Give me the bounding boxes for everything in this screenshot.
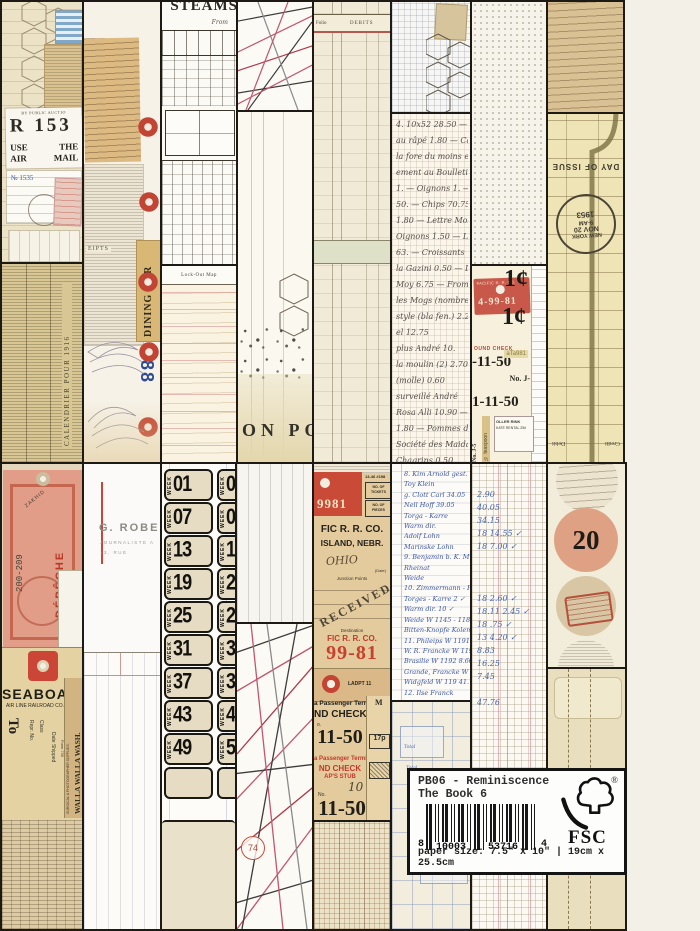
- twenty-circle: 20: [554, 508, 618, 572]
- blue-list-line: 11. Phileips W 1191 14.05 ✓: [404, 636, 470, 646]
- week-stamp: WEEK 19: [164, 568, 213, 600]
- postmark-year: 1953: [576, 209, 594, 219]
- handwriting-line: la fore du moins et mag: [396, 149, 468, 165]
- blue-grid-tile: [390, 0, 472, 114]
- handwriting-line: style (bla fen.) 2.25: [396, 309, 468, 325]
- terminal-black: a Passenger Terminal: [314, 700, 366, 707]
- almanac-caption: CALENDRIER POUR 1916: [62, 284, 72, 448]
- ledger-number: 40.05: [477, 501, 547, 514]
- blank-stamp: [164, 767, 213, 799]
- credit-label: Credit: [605, 440, 620, 446]
- blue-list-line: Bitten-Knopfe Kolemann: [404, 625, 470, 635]
- company-city: ISLAND, NEBR.: [314, 538, 390, 548]
- dot-grid-tile: [470, 0, 548, 266]
- ledger-number: 16.25: [477, 657, 547, 670]
- blue-list-line: Nell Hoff 39.05: [404, 500, 470, 510]
- pink-ledger-tile: Lock-Out Map: [160, 264, 238, 464]
- table-grid-lower: [162, 160, 236, 265]
- ledger-number: 7.45: [477, 670, 547, 683]
- week-row: WEEK 43 WEEK 44: [164, 699, 237, 732]
- ledger-form-lower: [84, 652, 160, 930]
- repr-label: Repr. No.: [28, 720, 34, 741]
- green-band: [314, 240, 390, 264]
- ink-speckles: [238, 322, 312, 382]
- mail-word: MAIL: [54, 152, 79, 162]
- ledger-number: 8.83: [477, 644, 547, 657]
- tan-handwriting-scrap: [83, 38, 141, 163]
- week-stamp: WEEK 14: [217, 535, 237, 567]
- stamp-strip: [8, 230, 80, 262]
- destination-label: Destination: [314, 628, 390, 633]
- week-number: 25: [173, 604, 191, 629]
- week-number: 31: [173, 637, 191, 662]
- week-number: 19: [173, 571, 191, 596]
- week-row: WEEK 13 WEEK 14: [164, 534, 237, 567]
- week-rows: WEEK 01 WEEK 02 WEEK 07 WEEK 08 WE: [164, 468, 237, 765]
- product-title-line1: PB06 - Reminiscence: [418, 775, 549, 788]
- seaboard-label: SEABOARD: [2, 686, 68, 702]
- blue-list-line: Weide W 1145 - 1182 4: [404, 615, 470, 625]
- check-black: ND CHECK: [314, 709, 366, 720]
- tan-wash: [84, 400, 162, 464]
- company-name: FIC R. R. CO.: [314, 524, 390, 535]
- paper-size-text: paper size: 7.5" x 10" | 19cm x 25.5cm: [418, 847, 624, 869]
- latitude-boxes: [165, 110, 235, 156]
- blue-list-line: Adolf Lohn: [404, 531, 470, 541]
- handwriting-line: 63. — Croissants: [396, 245, 468, 261]
- cream-card-outline: [554, 677, 622, 719]
- almanac-tile: CALENDRIER POUR 1916: [0, 262, 84, 464]
- handwriting-line: Rosa Alli 10.90 —: [396, 405, 468, 421]
- week-row: WEEK 25 WEEK 26: [164, 600, 237, 633]
- form-header-cells: [84, 653, 160, 676]
- red-check-number: 99-81: [314, 642, 390, 665]
- ledger-header-label: Lock-Out Map: [181, 273, 217, 278]
- number-strip-ticket: [44, 44, 82, 116]
- ledger-number: 18 .75 ✓: [477, 618, 547, 631]
- string-lines-small-tile: [236, 0, 314, 112]
- big-number-1: 11-50: [314, 726, 366, 749]
- red-stub: 9981: [314, 472, 362, 516]
- week-stamp: WEEK 49: [164, 733, 213, 765]
- supplies-label: SURGICAL & PHOTOGRAPHER SUPPLIES,: [66, 682, 70, 814]
- check-red: ND CHECK: [314, 764, 366, 773]
- ledger-number: 18 14.55 ✓: [477, 527, 547, 540]
- on-post-tile: ON POS: [236, 110, 314, 464]
- no-j-label: No. J-: [510, 374, 530, 383]
- chicken-wire-sketch: [426, 32, 470, 114]
- one-cent-bottom: 1¢: [502, 304, 526, 331]
- red-grommet: [322, 675, 340, 693]
- ledger-number: [477, 683, 547, 696]
- blue-list-line: 9. Benjamin b. K. M.: [404, 552, 470, 562]
- string-lines-pattern: [238, 2, 312, 110]
- handwriting-line: el 12.75: [396, 325, 468, 341]
- no-of-pieces-box: NO. OF PIECES: [365, 500, 392, 517]
- blue-list-line: g. Clott Carl 34.05: [404, 490, 470, 500]
- blank-stamp: [217, 767, 237, 799]
- m-label: M: [375, 698, 383, 707]
- journalist-line2: JOURNALISTE A: [100, 540, 155, 545]
- string-lines-pattern: [237, 624, 312, 929]
- airmail-line1: USE THE: [10, 141, 78, 152]
- week-stamp: WEEK 31: [164, 634, 213, 666]
- ledger-number: 18 2.60 ✓: [477, 592, 547, 605]
- week-row: WEEK 01 WEEK 02: [164, 468, 237, 501]
- penny-ticket-tile: PACIFIC R. R. CO. 4-99-81 1¢ 1¢ OUND CHE…: [470, 264, 548, 464]
- hatch-box: [369, 762, 390, 779]
- red-donut-reinforcement: [138, 117, 158, 137]
- handwriting-line: Moy 6.75 — Fromage: [396, 277, 468, 293]
- to-label: To: [4, 718, 21, 734]
- blue-list-tile: 8. Kim Arnold gest. 14.05Toy Kleing. Clo…: [390, 462, 472, 702]
- handwriting-line: Oignons 1.50 — Lucas: [396, 229, 468, 245]
- table-grid-upper: [162, 54, 236, 106]
- handwriting-line: surveillé André: [396, 389, 468, 405]
- week-stamp: WEEK 26: [217, 601, 237, 633]
- numbers-list: 2.9040.0534.1518 14.55 ✓18 7.00 ✓18 2.60…: [477, 488, 547, 709]
- blue-list-line: Warm dir. 10 ✓: [404, 604, 470, 614]
- receipts-fragment: EIPTS: [86, 246, 111, 252]
- fsc-tree-icon: [558, 777, 614, 831]
- flipped-handwriting-tile: [546, 0, 625, 114]
- ledger-number: 18 7.00 ✓: [477, 540, 547, 553]
- letterhead-scrap: [58, 570, 84, 652]
- red-donut-reinforcement: [139, 192, 159, 212]
- newsprint-circle: [558, 640, 614, 669]
- fsc-logo: ® FSC: [556, 775, 618, 851]
- side-ticket-sliver: M 17p: [366, 696, 391, 822]
- tag-code: aTa981: [504, 350, 528, 358]
- script-circle: [556, 462, 618, 512]
- blue-list-line: Weide: [404, 573, 470, 583]
- week-row: WEEK 07 WEEK 08: [164, 501, 237, 534]
- from-label: From: [212, 19, 228, 26]
- red-grommet: [28, 651, 58, 681]
- tan-wash-bottom: ON POS: [238, 374, 312, 464]
- ledger-number: 34.15: [477, 514, 547, 527]
- handwriting-line: 1.80 — Pommes de terre: [396, 421, 468, 437]
- handwriting-line: 50. — Chips 70.75 — L: [396, 197, 468, 213]
- ledger-number: 18.11 2.45 ✓: [477, 605, 547, 618]
- blue-list-line: 8. Kim Arnold gest. 14.05: [404, 469, 470, 479]
- class-label: Class: [38, 720, 44, 733]
- handwriting-line: 1. — Oignons 1. — Sala: [396, 181, 468, 197]
- week-stamp: WEEK 02: [217, 469, 237, 501]
- airline-label: AIR LINE RAILROAD CO.: [2, 703, 68, 709]
- blue-list-line: Torges - Karre 2 ✓: [404, 594, 470, 604]
- handwriting-line: les Mogs (nombreux): [396, 293, 468, 309]
- cream-card-bottom: [162, 820, 235, 931]
- product-info-box: PB06 - Reminiscence The Book 6 8 10003 5…: [407, 768, 627, 875]
- blue-list-line: Grande, Francke W 1193: [404, 667, 470, 677]
- handwriting-line: plus André 10.: [396, 341, 468, 357]
- week-stamp: WEEK 37: [164, 667, 213, 699]
- blue-check-ticket: [55, 10, 83, 44]
- circle-scraps-tile: 20: [546, 462, 627, 669]
- week-stamp: WEEK 13: [164, 535, 213, 567]
- air-word: AIR: [10, 153, 27, 163]
- folio-label: Folio: [316, 21, 336, 26]
- library-card-tile: DAY OF ISSUE NEW YORK NOV 20 9-AM 1953 C…: [546, 112, 625, 464]
- blue-list-line: 12. Ilse Franck: [404, 688, 470, 698]
- folio-header-row: Folio DEBITS: [314, 14, 390, 33]
- blue-list: 8. Kim Arnold gest. 14.05Toy Kleing. Clo…: [392, 464, 470, 698]
- blue-list-line: Brasilie W 1192 8.60 ✓: [404, 656, 470, 666]
- debit-label: Debit: [552, 440, 565, 446]
- range-number: 200-209: [15, 492, 25, 592]
- no-of-tickets-box: NO. OF TICKETS: [365, 482, 392, 499]
- week-stamp: WEEK 20: [217, 568, 237, 600]
- ladpt-label: LADPT 11: [348, 681, 371, 687]
- receipt-number: № 1535: [11, 174, 33, 182]
- steamship-title: STEAMS: [170, 0, 238, 15]
- week-stamp: WEEK 32: [217, 634, 237, 666]
- script-number: 10: [348, 780, 363, 794]
- week-row: WEEK 49 WEEK 50: [164, 732, 237, 765]
- terminal-red: a Passenger Terminal: [314, 756, 366, 762]
- blue-list-line: 10. Zimmermann - Potsdam: [404, 583, 470, 593]
- journalist-card-tile: G. ROBERT JOURNALISTE A 13, RUE: [82, 462, 162, 931]
- week-stamps-tile: WEEK 01 WEEK 02 WEEK 07 WEEK 08 WE: [160, 462, 237, 931]
- grommet-hole: [37, 660, 49, 672]
- registered-number: R 153: [10, 115, 72, 138]
- string-lines-tile: 74: [235, 622, 314, 931]
- total-label: Total: [404, 745, 415, 750]
- credit-debit-row: Credit Debit: [552, 440, 620, 446]
- week-stamp: WEEK 50: [217, 733, 237, 765]
- blue-list-line: Warm dir.: [404, 521, 470, 531]
- roller-rink-line: OLLER RINK: [496, 419, 532, 424]
- pence-box: 17p: [369, 734, 390, 749]
- blue-list-line: Marinske Lohn: [404, 542, 470, 552]
- on-post-text: ON POS: [242, 420, 314, 441]
- skate-rental-line: KATE RENTAL 25¢: [496, 426, 532, 430]
- postmark-time: 9-AM: [578, 218, 593, 225]
- week-stamp: WEEK 44: [217, 700, 237, 732]
- week-row: WEEK 37 WEEK 38: [164, 666, 237, 699]
- use-word: USE: [10, 142, 28, 152]
- walla-label: WALLA WALLA WASH.: [73, 682, 82, 814]
- paper-pad-back-cover: BY PUBLIC AUCTIO R 153 USE THE AIR MAIL …: [0, 0, 700, 931]
- week-number: 43: [173, 703, 191, 728]
- red-donut-reinforcement: [138, 272, 158, 292]
- timetable-scrap: [2, 820, 84, 931]
- check-number-bottom: 1-11-50: [472, 394, 519, 411]
- handwriting-line: (molle) 0.60: [396, 373, 468, 389]
- ledger-number: [477, 553, 547, 566]
- airmail-line2: AIR MAIL: [10, 152, 78, 163]
- debits-label: DEBITS: [350, 21, 374, 26]
- blue-list-line: Widgfeld W 119 41.70: [404, 677, 470, 687]
- handwriting-line: 1.80 — Lettre Mozy 4.20: [396, 213, 468, 229]
- handwriting-line: au râpé 1.80 — Camem: [396, 133, 468, 149]
- blue-list-line: Torga - Karre: [404, 511, 470, 521]
- week-stamp: WEEK 08: [217, 502, 237, 534]
- table-header-band: [162, 30, 236, 56]
- ohio-handwriting: OHIO: [326, 553, 359, 568]
- punch-hole: [320, 478, 330, 488]
- railroad-ticket-tile: 9981 13-46 #198 NO. OF TICKETS NO. OF PI…: [312, 462, 392, 822]
- ruled-paper-tile: [235, 462, 314, 624]
- ledger-number: [477, 579, 547, 592]
- week-stamp: WEEK 01: [164, 469, 213, 501]
- french-lines-list: 4. 10x52 28.50 — Pannau râpé 1.80 — Came…: [392, 114, 470, 464]
- week-number: 01: [173, 472, 191, 497]
- ledger-number: [477, 566, 547, 579]
- form-chip: Total: [400, 726, 444, 758]
- twenty-number: 20: [573, 525, 600, 556]
- barcode: 8 10003 53716 4: [418, 804, 547, 850]
- steamship-log-tile: STEAMS From: [160, 0, 238, 266]
- handwriting-line: Société des Maidan: [396, 437, 468, 453]
- day-of-issue-label: DAY OF ISSUE: [548, 162, 623, 171]
- stamp-circle: [556, 576, 616, 636]
- week-number: 07: [173, 505, 191, 530]
- french-handwriting-tile: 4. 10x52 28.50 — Pannau râpé 1.80 — Came…: [390, 112, 472, 464]
- week-stamp: WEEK 07: [164, 502, 213, 534]
- big-number-2: 11-50: [314, 796, 370, 821]
- week-number: 49: [173, 736, 191, 761]
- handwriting-line: la moulin (2) 2.70: [396, 357, 468, 373]
- ledger-number: 47.76: [477, 696, 547, 709]
- red-stamp-frame: [564, 591, 614, 627]
- journalist-line3: 13, RUE: [100, 550, 128, 555]
- junction-label: Junction Points: [314, 576, 390, 581]
- week-stamp: WEEK 38: [217, 667, 237, 699]
- product-title: PB06 - Reminiscence The Book 6: [418, 775, 549, 801]
- date-shipped-label: Date Shipped: [50, 732, 56, 762]
- mail-ephemera-tile: BY PUBLIC AUCTIO R 153 USE THE AIR MAIL …: [0, 0, 84, 264]
- teaspoon-label: ½ teaspoon: [482, 416, 490, 462]
- ledger-header-strip: Lock-Out Map: [162, 266, 236, 285]
- ledger-number: 2.90: [477, 488, 547, 501]
- folio-ledger-tile: Folio DEBITS: [312, 0, 392, 464]
- week-number: 13: [173, 538, 191, 563]
- graph-paper-tile: [312, 820, 392, 931]
- barcode-bars: 10003 53716: [426, 804, 538, 850]
- blue-list-line: W. R. Francke W 1192 16.05: [404, 646, 470, 656]
- roller-rink-chip: OLLER RINK KATE RENTAL 25¢: [494, 416, 534, 452]
- sketch-collage-tile: EIPTS DINING CAR 88: [82, 0, 162, 464]
- registered-label: BY PUBLIC AUCTIO R 153 USE THE AIR MAIL: [5, 107, 82, 168]
- week-stamp: WEEK 25: [164, 601, 213, 633]
- circle-74: 74: [241, 836, 265, 860]
- tags-tile: DÉPÊCHE 200-209 ZAKHID SEABOARD AIR LINE…: [0, 462, 84, 931]
- no-j5-label: No. J-5: [472, 422, 478, 462]
- grommet-hole: [36, 472, 50, 486]
- handwriting-line: ement au Boulletin de: [396, 165, 468, 181]
- week-row: WEEK 19 WEEK 20: [164, 567, 237, 600]
- journalist-name: G. ROBERT: [99, 522, 162, 534]
- code-line: 13-46 #198: [365, 474, 385, 479]
- blue-list-line: Toy Klein: [404, 479, 470, 489]
- product-title-line2: The Book 6: [418, 788, 549, 801]
- week-stamp: WEEK 43: [164, 700, 213, 732]
- date-label: (Date): [375, 568, 386, 573]
- red-form-scrap: [53, 178, 83, 227]
- walla-strip: WALLA WALLA WASH. SURGICAL & PHOTOGRAPHE…: [64, 678, 84, 818]
- newsprint-scrap: [84, 164, 144, 346]
- stub-number: 9981: [317, 496, 347, 512]
- week-row: WEEK 31 WEEK 32: [164, 633, 237, 666]
- fsc-text: FSC: [568, 827, 607, 849]
- one-cent-top: 1¢: [504, 266, 528, 293]
- blue-list-line: Rheinat: [404, 563, 470, 573]
- handwriting-line: 4. 10x52 28.50 — Pann: [396, 117, 468, 133]
- the-word: THE: [59, 141, 78, 151]
- week-number: 37: [173, 670, 191, 695]
- ledger-number: 13 4.20 ✓: [477, 631, 547, 644]
- handwriting-line: la Gazini 0.50 — Dra: [396, 261, 468, 277]
